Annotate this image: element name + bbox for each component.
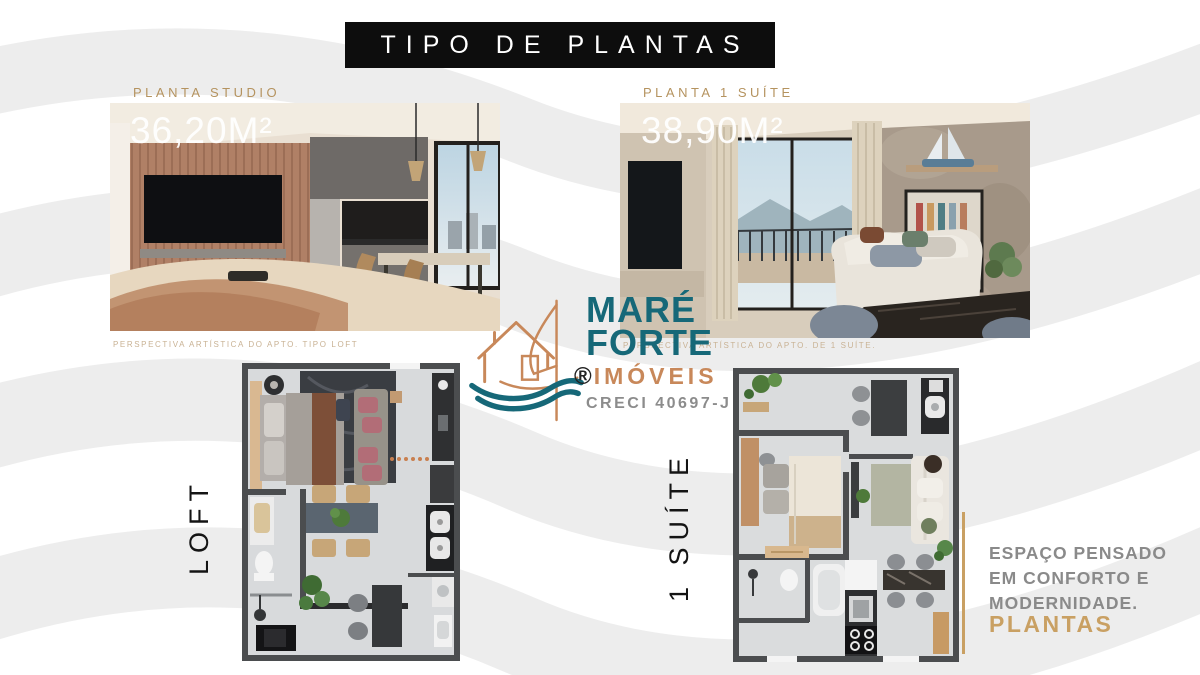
studio-plan-label: PLANTA STUDIO (133, 85, 280, 100)
logo-text-block: MARÉ FORTE ® IMÓVEIS CRECI 40697-J (586, 293, 731, 413)
suite-floorplan-label: 1 SUÍTE (664, 430, 695, 602)
accent-vertical-line (962, 512, 965, 654)
logo-name-line2: FORTE (586, 326, 731, 359)
loft-floorplan (242, 363, 460, 661)
logo-license-number: CRECI 40697-J (586, 395, 731, 413)
tagline-line-1: ESPAÇO PENSADO (989, 541, 1167, 566)
plantas-highlight-text: PLANTAS (989, 611, 1113, 638)
studio-photo-caption: PERSPECTIVA ARTÍSTICA DO APTO. TIPO LOFT (113, 340, 358, 349)
title-bar: TIPO DE PLANTAS (345, 22, 775, 68)
suite-plan-label: PLANTA 1 SUÍTE (643, 85, 794, 100)
tagline-line-2: EM CONFORTO E (989, 566, 1167, 591)
mare-forte-logo: MARÉ FORTE ® IMÓVEIS CRECI 40697-J (468, 293, 728, 425)
suite-area-text: 38,90M² (641, 110, 784, 152)
studio-area-text: 36,20M² (130, 110, 273, 152)
suite-floorplan (733, 368, 959, 662)
page-title: TIPO DE PLANTAS (370, 31, 749, 60)
loft-floorplan-label: LOFT (184, 455, 215, 575)
flyer-canvas: TIPO DE PLANTAS PLANTA STUDIO (0, 0, 1200, 675)
tagline-text: ESPAÇO PENSADO EM CONFORTO E MODERNIDADE… (989, 541, 1167, 616)
registered-trademark-icon: ® (574, 365, 592, 389)
house-sail-waves-icon (468, 295, 586, 423)
logo-subtitle: IMÓVEIS (594, 363, 718, 390)
